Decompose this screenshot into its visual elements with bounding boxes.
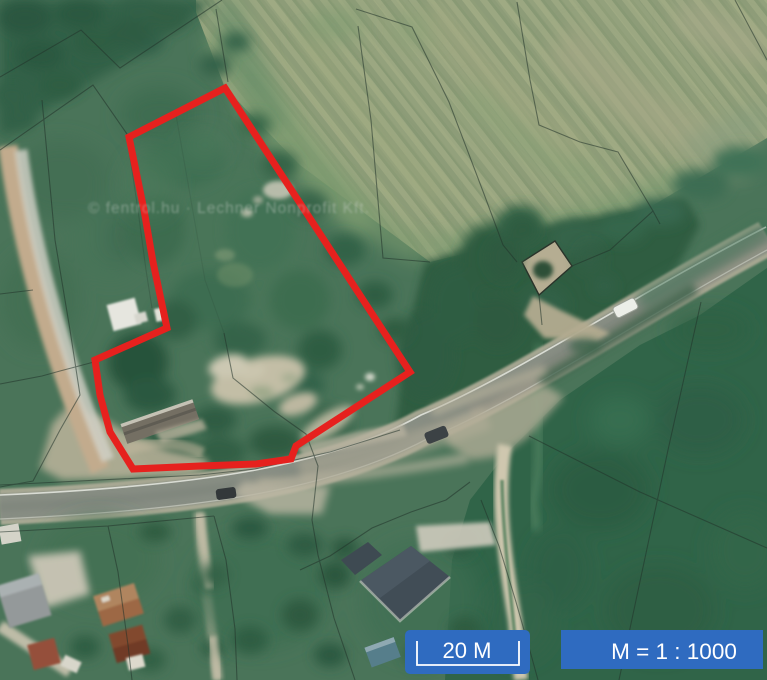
svg-text:M = 1 : 1000: M = 1 : 1000 (611, 639, 737, 664)
svg-text:© fentrol.hu · Lechner Nonprof: © fentrol.hu · Lechner Nonprofit Kft. (88, 200, 370, 217)
svg-text:20 M: 20 M (443, 638, 492, 663)
